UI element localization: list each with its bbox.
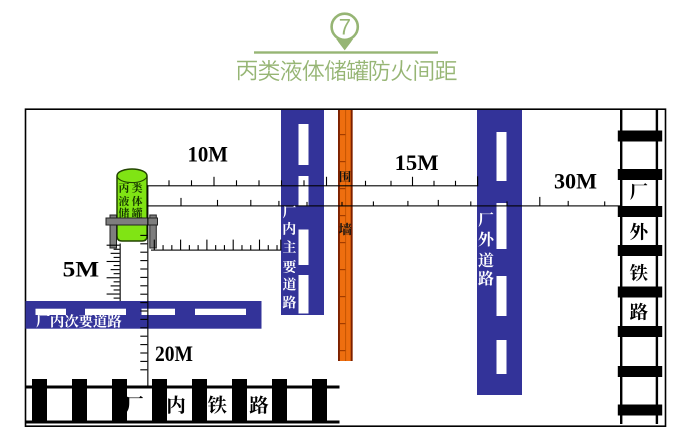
svg-text:15M: 15M bbox=[395, 150, 439, 175]
svg-text:5M: 5M bbox=[63, 256, 100, 281]
svg-text:7: 7 bbox=[339, 15, 351, 40]
svg-text:10M: 10M bbox=[187, 141, 228, 166]
svg-text:30M: 30M bbox=[554, 169, 597, 194]
svg-text:20M: 20M bbox=[155, 341, 193, 366]
